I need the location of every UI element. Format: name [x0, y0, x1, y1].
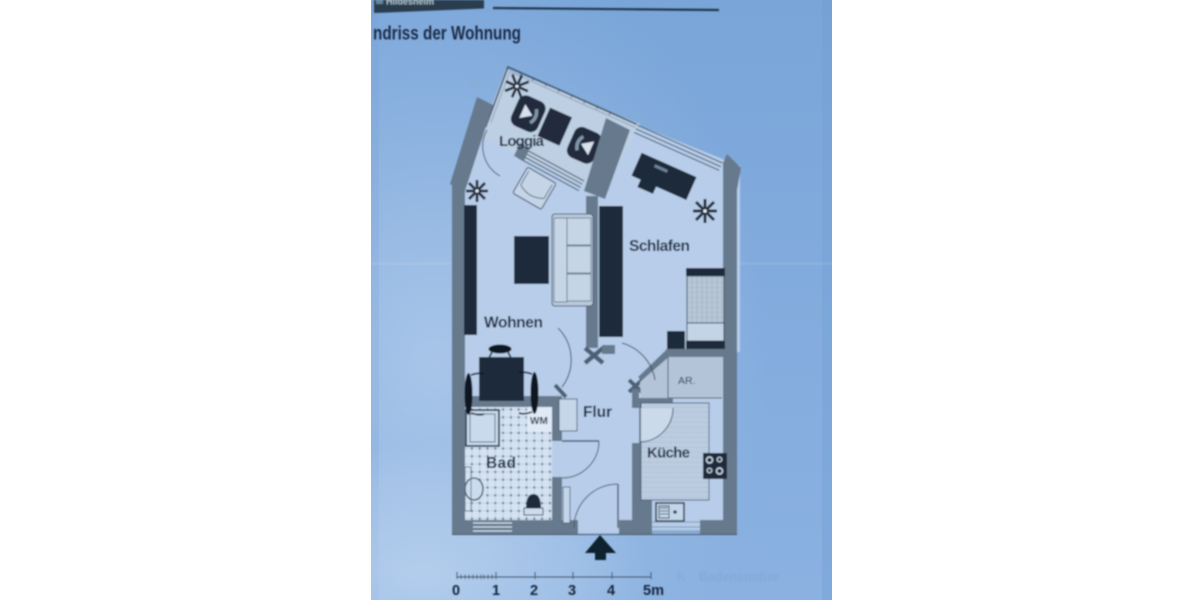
svg-text:Küche: Küche	[647, 446, 690, 462]
svg-text:0: 0	[452, 583, 460, 599]
svg-text:Wohnen: Wohnen	[484, 315, 543, 332]
svg-text:2: 2	[530, 583, 538, 599]
svg-text:ndriss der Wohnung: ndriss der Wohnung	[373, 24, 521, 45]
svg-text:Badenstedter: Badenstedter	[699, 570, 779, 584]
svg-text:1: 1	[492, 583, 500, 599]
svg-text:4: 4	[607, 583, 615, 599]
svg-text:Flur: Flur	[583, 404, 612, 421]
svg-text:5m: 5m	[643, 583, 664, 599]
svg-text:3: 3	[568, 583, 576, 599]
svg-text:Schlafen: Schlafen	[629, 238, 690, 255]
svg-text:Loggia: Loggia	[499, 133, 545, 150]
svg-text:K: K	[677, 570, 686, 584]
svg-text:Hildesheim: Hildesheim	[386, 0, 434, 7]
svg-text:WM: WM	[530, 416, 548, 427]
svg-text:Bad: Bad	[486, 455, 516, 472]
svg-text:AR.: AR.	[678, 375, 696, 387]
